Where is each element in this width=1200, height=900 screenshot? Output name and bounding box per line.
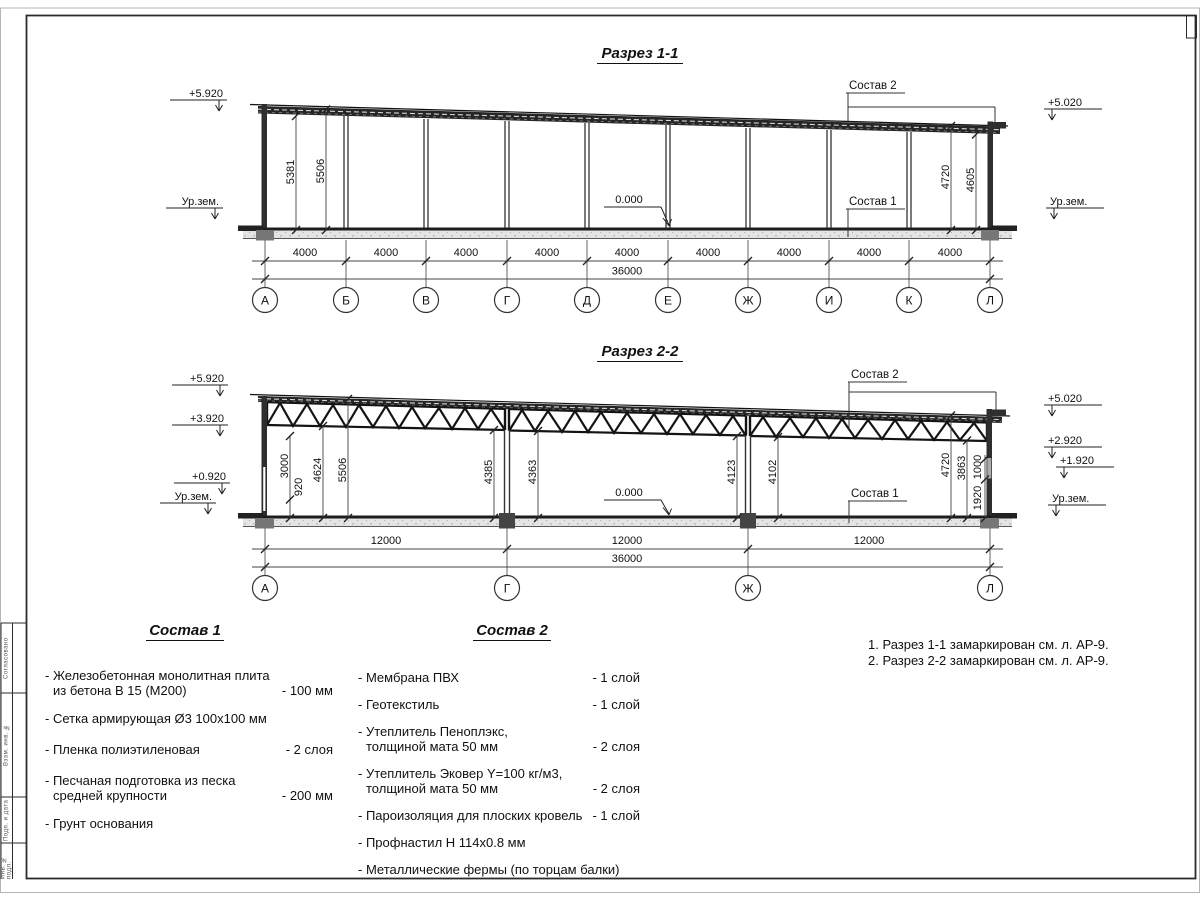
stamp-box-label: Согласовано [1, 623, 12, 693]
item-text2: толщиной мата 50 мм [358, 781, 562, 796]
span-dim: 12000 [854, 535, 885, 547]
note-line: 1. Разрез 1-1 замаркирован см. л. АР-9. [868, 637, 1109, 653]
s2-bottom-dims: 12000 12000 12000 36000 [252, 528, 1003, 575]
s2-axis-bubbles: А Г Ж Л [253, 576, 1003, 601]
drawing-sheet: 5381 5506 4720 4605 +5.920 Ур.зем. +5.02… [0, 0, 1200, 900]
list-item: - Песчаная подготовка из песка средней к… [45, 773, 333, 803]
item-value: - 1 слой [592, 697, 640, 712]
item-text2: из бетона В 15 (М200) [45, 683, 270, 698]
ground-label: Ур.зем. [1050, 196, 1087, 208]
total-dim: 36000 [612, 266, 643, 278]
item-value: - 100 мм [282, 683, 333, 698]
sostav1-heading-text: Состав 1 [146, 622, 224, 641]
s1-axis-bubbles: А Б В Г Д Е Ж И К Л [253, 288, 1003, 313]
section2-title-text: Разрез 2-2 [597, 343, 682, 362]
item-text: - Пленка полиэтиленовая [45, 742, 200, 757]
span-dim: 4000 [938, 247, 962, 259]
list-item: - Железобетонная монолитная плита из бет… [45, 668, 333, 698]
dim-label: 1920 [972, 486, 984, 510]
elevation-label: +5.020 [1048, 97, 1082, 109]
item-text: - Песчаная подготовка из песка [45, 773, 235, 788]
span-dim: 12000 [371, 535, 402, 547]
axis-label: Д [583, 294, 591, 308]
span-dim: 4000 [374, 247, 398, 259]
zero-label: 0.000 [615, 194, 643, 206]
item-text: - Грунт основания [45, 816, 153, 831]
item-value: - 200 мм [282, 788, 333, 803]
span-dim: 12000 [612, 535, 643, 547]
axis-label: Е [664, 294, 672, 308]
s2-elevation-marks-right: +5.020 +2.920 +1.920 Ур.зем. [1044, 393, 1114, 516]
s1-bottom-dims: 4000 4000 4000 4000 4000 4000 4000 4000 … [252, 240, 1003, 287]
notes: 1. Разрез 1-1 замаркирован см. л. АР-9. … [868, 637, 1109, 668]
dim-label: 4123 [726, 460, 738, 484]
ground-label: Ур.зем. [1052, 493, 1089, 505]
span-dim: 4000 [696, 247, 720, 259]
sostav1-heading: Состав 1 [115, 622, 255, 641]
list-item: - Пленка полиэтиленовая - 2 слоя [45, 742, 333, 757]
span-dim: 4000 [454, 247, 478, 259]
axis-label: А [261, 582, 269, 596]
item-text: - Профнастил Н 114х0.8 мм [358, 835, 526, 850]
sostav2-heading: Состав 2 [442, 622, 582, 641]
axis-label: Г [504, 582, 511, 596]
sostav1-ref: Состав 1 [851, 488, 899, 500]
axis-label: Ж [742, 582, 753, 596]
s2-floor [238, 513, 1017, 529]
list-item: - Мембрана ПВХ - 1 слой [358, 670, 640, 685]
total-dim: 36000 [612, 553, 643, 565]
stamp-box-label: Взам. инв. № [1, 693, 12, 797]
item-value: - 1 слой [592, 670, 640, 685]
item-text: - Геотекстиль [358, 697, 439, 712]
axis-label: Б [342, 294, 350, 308]
item-text: - Утеплитель Эковер Y=100 кг/м3, [358, 766, 562, 781]
dim-label: 4102 [767, 460, 779, 484]
dim-label: 4363 [527, 460, 539, 484]
sostav2-heading-text: Состав 2 [473, 622, 551, 641]
note-line: 2. Разрез 2-2 замаркирован см. л. АР-9. [868, 653, 1109, 669]
item-value: - 2 слоя [593, 781, 640, 796]
item-value: - 1 слой [592, 808, 640, 823]
elevation-label: +0.920 [192, 471, 226, 483]
dim-label: 4720 [940, 453, 952, 477]
sostav2-list: - Мембрана ПВХ - 1 слой - Геотекстиль - … [358, 670, 640, 890]
list-item: - Пароизоляция для плоских кровель - 1 с… [358, 808, 640, 823]
section1-title-text: Разрез 1-1 [597, 45, 682, 64]
axis-label: Л [986, 582, 994, 596]
item-text: - Сетка армирующая Ø3 100х100 мм [45, 711, 267, 726]
dim-label: 4385 [483, 460, 495, 484]
s2-columns [505, 430, 751, 518]
elevation-label: +3.920 [190, 413, 224, 425]
stamp-box-label: Инв. № подл. [1, 843, 12, 879]
span-dim: 4000 [293, 247, 317, 259]
item-text: - Утеплитель Пеноплэкс, [358, 724, 508, 739]
elevation-label: +5.920 [190, 373, 224, 385]
sostav1-ref: Состав 1 [849, 196, 897, 208]
s1-columns [344, 116, 911, 230]
item-text2: средней крупности [45, 788, 235, 803]
s1-composition-labels: Состав 2 Состав 1 [846, 80, 995, 237]
dim-label: 5506 [315, 159, 327, 183]
section1-title: Разрез 1-1 [560, 45, 720, 64]
span-dim: 4000 [535, 247, 559, 259]
dim-label: 5381 [285, 160, 297, 184]
list-item: - Утеплитель Эковер Y=100 кг/м3, толщино… [358, 766, 640, 796]
sostav1-list: - Железобетонная монолитная плита из бет… [45, 668, 333, 844]
stamp-box-label: Подп. и дата [1, 797, 12, 843]
s2-zero-mark: 0.000 [604, 487, 672, 515]
elevation-label: +1.920 [1060, 455, 1094, 467]
dim-label: 5506 [337, 458, 349, 482]
dim-label: 4624 [312, 458, 324, 482]
elevation-label: +5.020 [1048, 393, 1082, 405]
list-item: - Утеплитель Пеноплэкс, толщиной мата 50… [358, 724, 640, 754]
list-item: - Геотекстиль - 1 слой [358, 697, 640, 712]
s2-elevation-marks-left: +5.920 +3.920 +0.920 Ур.зем. [160, 373, 230, 514]
dim-label: 3863 [956, 456, 968, 480]
zero-label: 0.000 [615, 487, 643, 499]
dim-label: 1000 [972, 455, 984, 479]
section-1-1: 5381 5506 4720 4605 +5.920 Ур.зем. +5.02… [166, 80, 1104, 313]
span-dim: 4000 [857, 247, 881, 259]
sostav2-ref: Состав 2 [849, 80, 897, 92]
item-text2: толщиной мата 50 мм [358, 739, 508, 754]
item-text: - Металлические фермы (по торцам балки) [358, 862, 619, 877]
span-dim: 4000 [615, 247, 639, 259]
axis-label: К [906, 294, 913, 308]
s1-zero-mark: 0.000 [604, 194, 672, 226]
item-text: - Железобетонная монолитная плита [45, 668, 270, 683]
item-value: - 2 слоя [286, 742, 333, 757]
axis-label: Ж [742, 294, 753, 308]
list-item: - Профнастил Н 114х0.8 мм [358, 835, 640, 850]
section-2-2: 3000 920 4624 5506 4385 4363 4123 4102 4… [160, 369, 1114, 601]
dim-label: 920 [293, 478, 305, 496]
elevation-label: +2.920 [1048, 435, 1082, 447]
dim-label: 3000 [279, 454, 291, 478]
item-text: - Мембрана ПВХ [358, 670, 459, 685]
s1-roof [250, 105, 1008, 135]
axis-label: И [825, 294, 834, 308]
axis-label: Г [504, 294, 511, 308]
axis-label: Л [986, 294, 994, 308]
axis-label: А [261, 294, 269, 308]
axis-label: В [422, 294, 430, 308]
sostav2-ref: Состав 2 [851, 369, 899, 381]
list-item: - Металлические фермы (по торцам балки) [358, 862, 640, 877]
dim-label: 4720 [940, 165, 952, 189]
span-dim: 4000 [777, 247, 801, 259]
list-item: - Сетка армирующая Ø3 100х100 мм [45, 711, 333, 726]
ground-label: Ур.зем. [182, 196, 219, 208]
s1-floor [238, 226, 1017, 241]
ground-label: Ур.зем. [175, 491, 212, 503]
elevation-label: +5.920 [189, 88, 223, 100]
list-item: - Грунт основания [45, 816, 333, 831]
item-text: - Пароизоляция для плоских кровель [358, 808, 582, 823]
item-value: - 2 слоя [593, 739, 640, 754]
section2-title: Разрез 2-2 [560, 343, 720, 362]
dim-label: 4605 [965, 168, 977, 192]
